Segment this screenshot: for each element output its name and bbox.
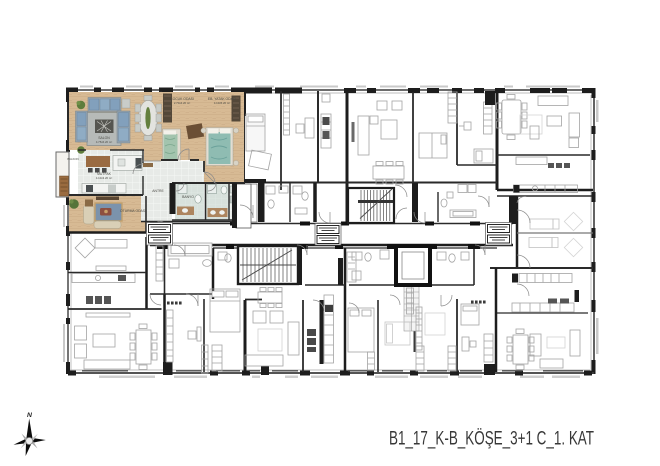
svg-text:2.70x4.20 m²: 2.70x4.20 m² xyxy=(174,101,190,105)
svg-text:4.10x5.20 m²: 4.10x5.20 m² xyxy=(214,101,230,105)
svg-text:BANYO: BANYO xyxy=(182,195,194,199)
svg-text:4.10x3.20 m²: 4.10x3.20 m² xyxy=(96,176,112,180)
svg-text:BALKON: BALKON xyxy=(67,157,78,161)
svg-text:B1_17_K-B_KÖŞE_3+1 C_1. KAT: B1_17_K-B_KÖŞE_3+1 C_1. KAT xyxy=(389,429,594,450)
svg-text:4.75x6.20 m²: 4.75x6.20 m² xyxy=(96,140,112,144)
svg-text:OTURMA ODASI: OTURMA ODASI xyxy=(120,209,146,213)
svg-text:ANTRE: ANTRE xyxy=(152,189,164,193)
